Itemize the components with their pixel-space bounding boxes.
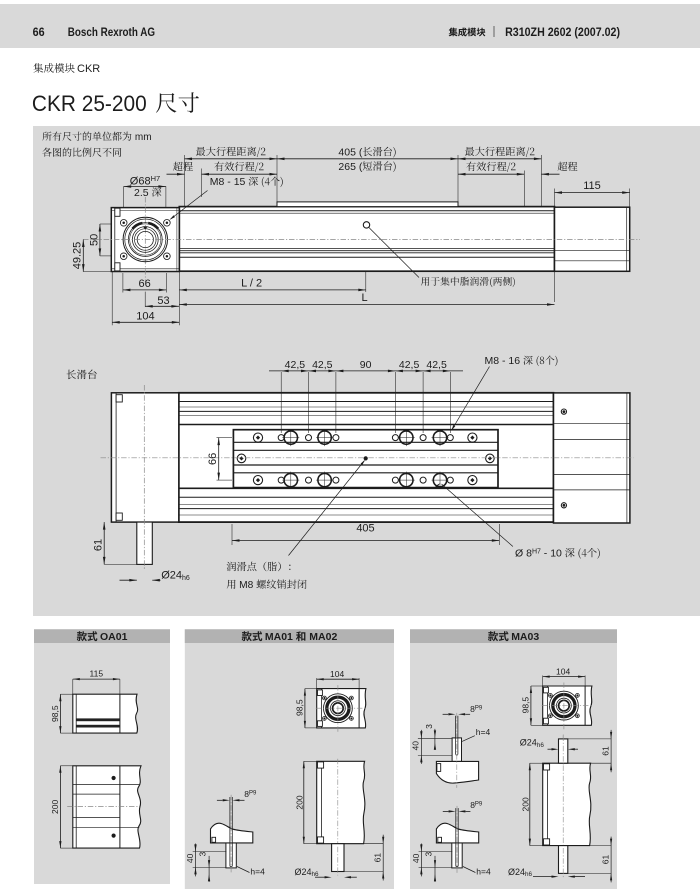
svg-text:53: 53 — [157, 295, 169, 307]
svg-text:200: 200 — [294, 795, 304, 809]
svg-text:66: 66 — [138, 278, 150, 290]
svg-text:R310ZH 2602 (2007.02): R310ZH 2602 (2007.02) — [505, 27, 620, 39]
svg-text:h=4: h=4 — [476, 727, 491, 737]
svg-text:MA01: MA01 — [265, 631, 293, 643]
svg-text:MA03: MA03 — [511, 631, 539, 643]
svg-text:42,5: 42,5 — [426, 359, 447, 371]
svg-text:265 (: 265 ( — [338, 161, 362, 173]
svg-text:2.5: 2.5 — [134, 187, 149, 199]
svg-text:L / 2: L / 2 — [241, 278, 262, 290]
svg-text:mm: mm — [135, 132, 152, 143]
svg-text:61: 61 — [600, 746, 610, 756]
svg-text:L: L — [361, 292, 367, 304]
svg-text:Bosch Rexroth AG: Bosch Rexroth AG — [68, 25, 155, 39]
svg-text:40: 40 — [411, 853, 421, 863]
svg-text:M8 - 16: M8 - 16 — [485, 355, 521, 367]
svg-text:61: 61 — [600, 855, 610, 865]
svg-text:MA02: MA02 — [309, 631, 337, 643]
svg-text:98,5: 98,5 — [50, 705, 60, 722]
svg-text:405 (: 405 ( — [338, 146, 362, 158]
svg-text:61: 61 — [93, 539, 105, 551]
svg-text:98,5: 98,5 — [294, 699, 304, 716]
svg-text:50: 50 — [89, 234, 101, 246]
svg-text:104: 104 — [556, 666, 570, 676]
svg-text:42,5: 42,5 — [312, 359, 333, 371]
svg-text:66: 66 — [33, 25, 45, 39]
svg-text:405: 405 — [356, 522, 374, 534]
svg-text:200: 200 — [50, 800, 60, 814]
svg-text:49.25: 49.25 — [71, 242, 83, 270]
svg-text:40: 40 — [411, 741, 421, 751]
svg-text:104: 104 — [330, 669, 344, 679]
svg-text:CKR 25-200: CKR 25-200 — [32, 91, 147, 116]
svg-text:h=4: h=4 — [250, 867, 265, 877]
svg-text:104: 104 — [136, 311, 154, 323]
svg-text:42,5: 42,5 — [285, 359, 306, 371]
svg-text:66: 66 — [207, 453, 219, 465]
svg-text:h=4: h=4 — [476, 867, 491, 877]
svg-text:OA01: OA01 — [100, 631, 128, 643]
svg-text:3: 3 — [424, 851, 434, 856]
svg-text:M8 - 15: M8 - 15 — [210, 176, 246, 188]
svg-text:98,5: 98,5 — [520, 697, 530, 714]
svg-text:90: 90 — [360, 359, 372, 371]
svg-text:CKR: CKR — [77, 63, 100, 75]
svg-text:3: 3 — [424, 724, 434, 729]
svg-text:61: 61 — [373, 853, 383, 863]
svg-text:40: 40 — [185, 853, 195, 863]
svg-text:M8: M8 — [239, 580, 253, 591]
svg-text:42,5: 42,5 — [399, 359, 420, 371]
svg-text:3: 3 — [198, 851, 208, 856]
svg-text:115: 115 — [90, 669, 104, 679]
svg-text:115: 115 — [583, 180, 601, 192]
svg-text:200: 200 — [520, 797, 530, 811]
